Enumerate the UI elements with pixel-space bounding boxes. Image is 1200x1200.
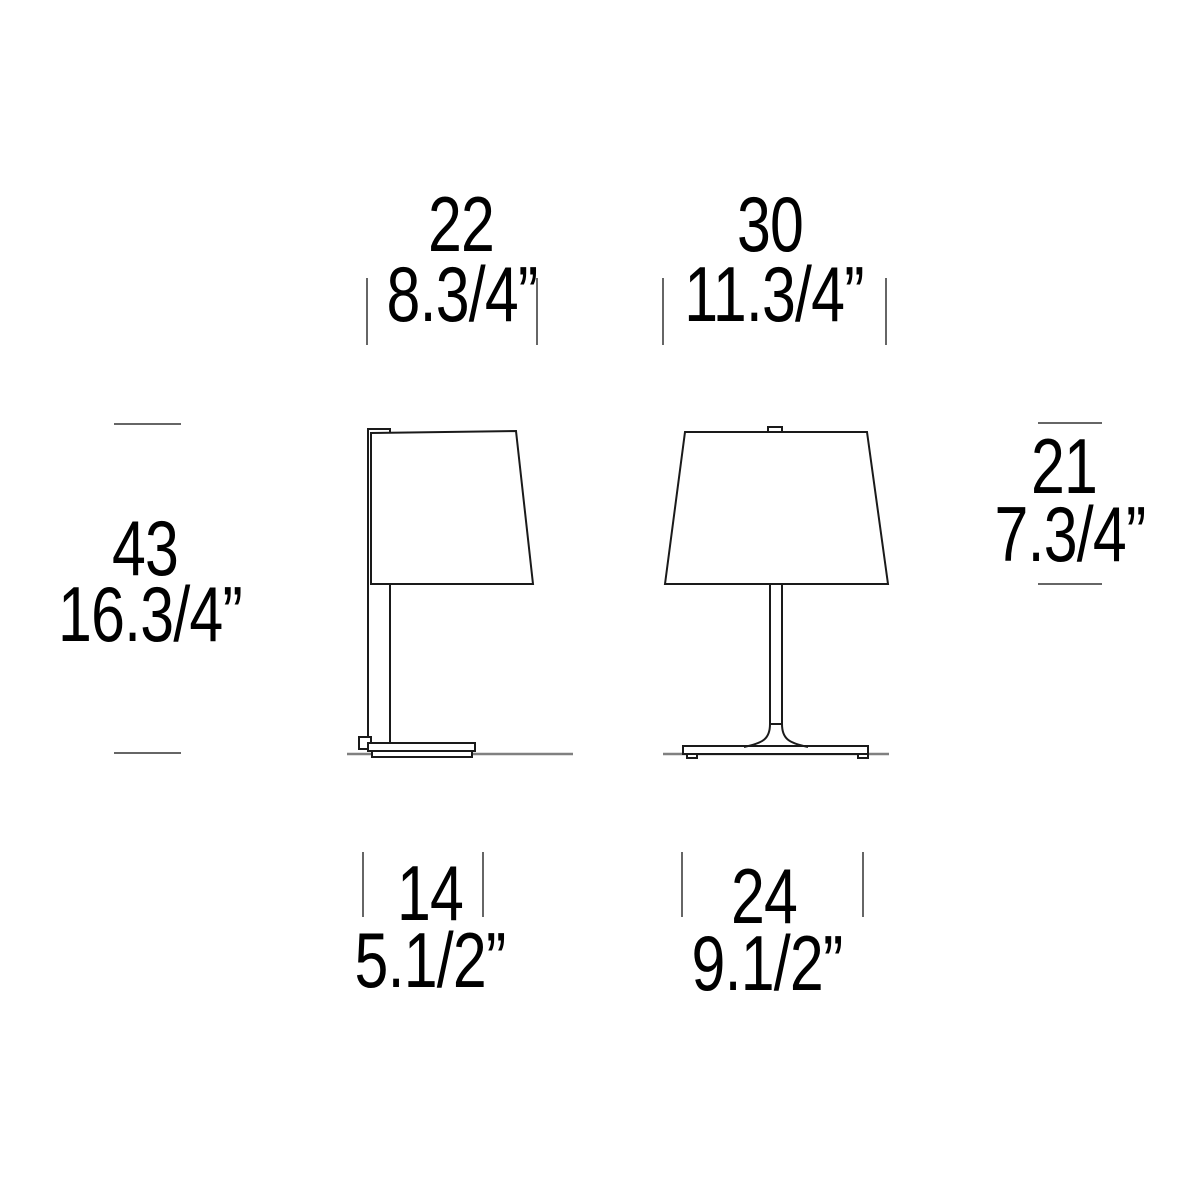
label-shade-height-in: 7.3/4” — [995, 495, 1146, 573]
lamp-dimension-diagram: 22 8.3/4” 30 11.3/4” 43 16.3/4” 21 7.3/4… — [0, 0, 1200, 1200]
lamp-side-base-bottom — [372, 751, 472, 757]
lamp-side-view-drawing — [359, 429, 533, 757]
label-base-width-large-in: 9.1/2” — [692, 924, 843, 1002]
lamp-front-base — [683, 746, 868, 754]
lamp-side-shade — [371, 431, 533, 584]
dimension-ticks — [114, 278, 1102, 917]
label-shade-width-small-in: 8.3/4” — [387, 255, 538, 333]
lamp-side-base-top — [368, 743, 475, 751]
label-shade-width-large-in: 11.3/4” — [684, 255, 863, 333]
lamp-front-foot-right — [858, 754, 868, 758]
lamp-front-shade — [665, 432, 888, 584]
lamp-front-foot-left — [687, 754, 697, 758]
label-total-height-in: 16.3/4” — [58, 575, 242, 653]
lamp-front-flare-right — [782, 724, 808, 747]
lamp-front-view-drawing — [665, 427, 888, 758]
label-base-width-small-in: 5.1/2” — [355, 921, 506, 999]
lamp-front-flare-left — [744, 724, 770, 747]
